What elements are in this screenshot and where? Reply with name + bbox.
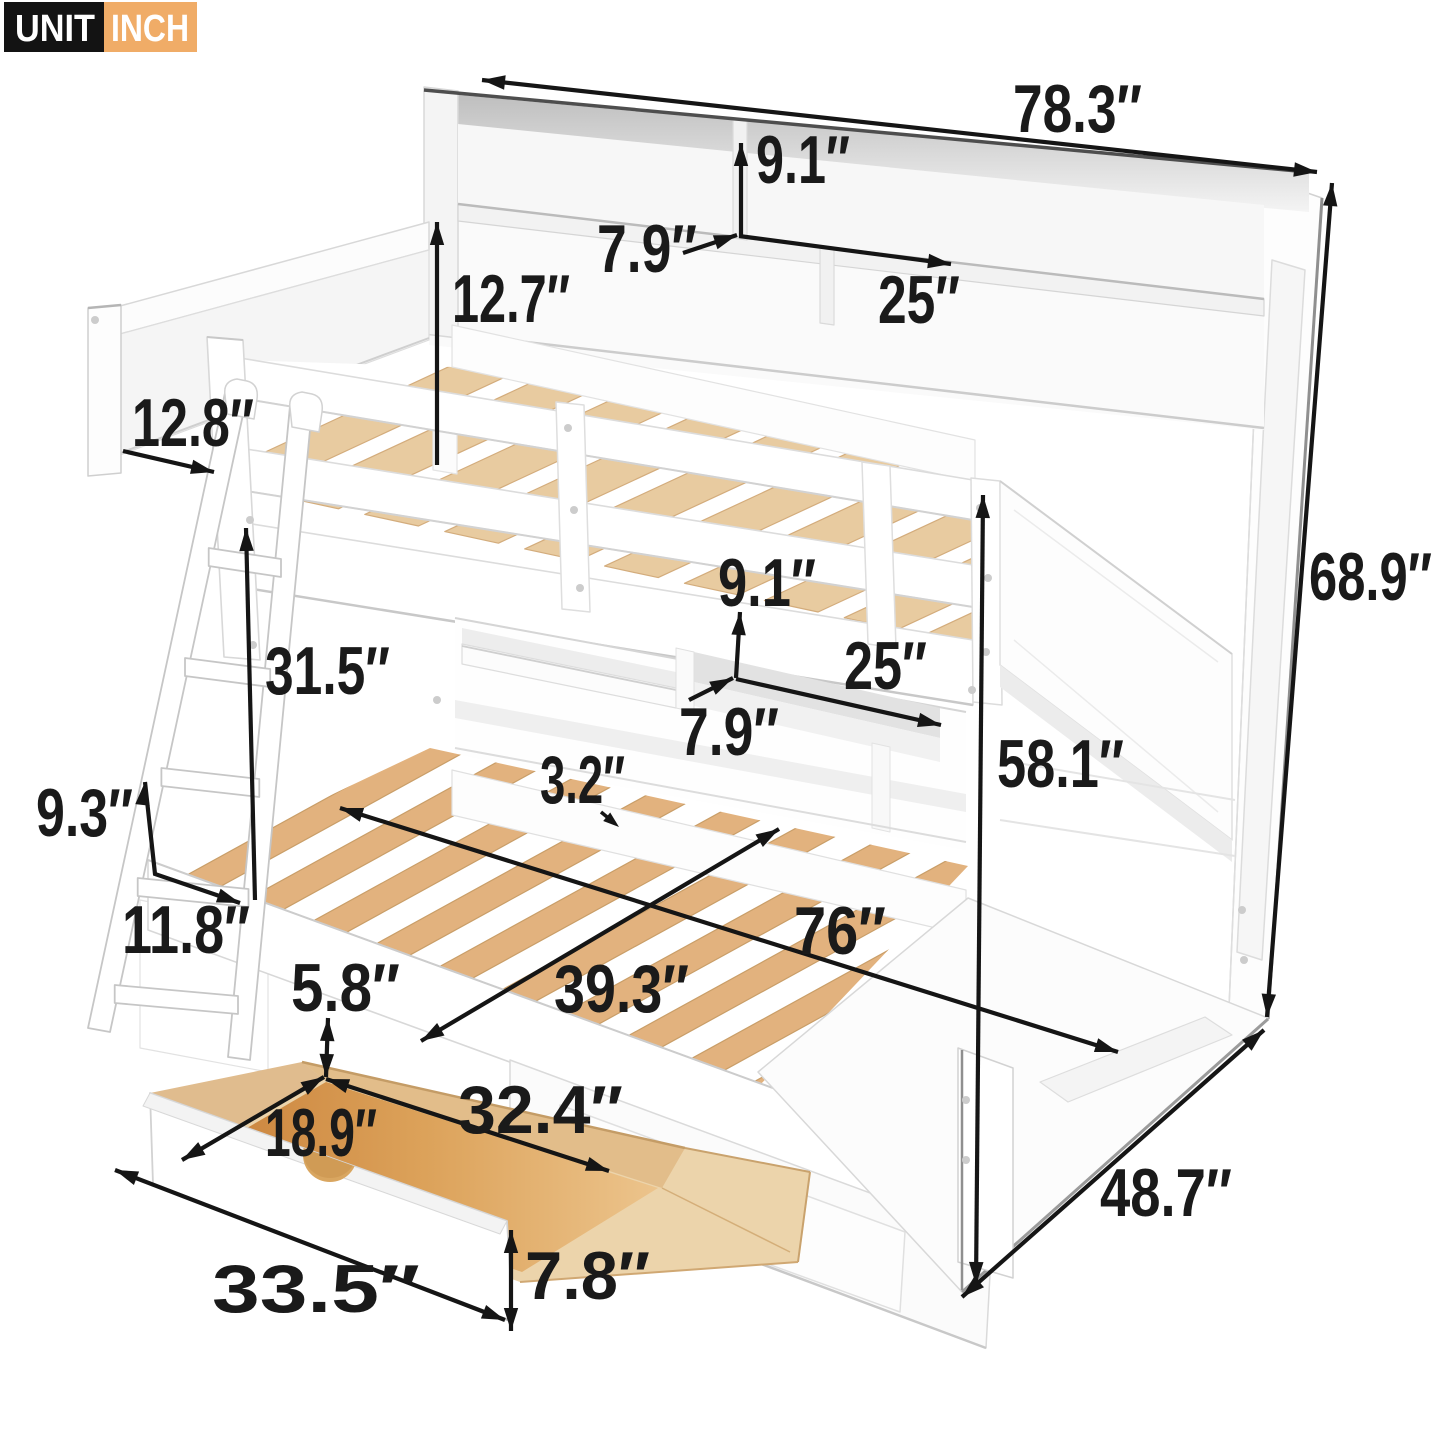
svg-text:3.2″: 3.2″ — [540, 742, 625, 818]
svg-text:25″: 25″ — [878, 262, 960, 338]
svg-text:7.9″: 7.9″ — [679, 694, 779, 770]
svg-text:9.1″: 9.1″ — [718, 545, 816, 621]
svg-text:9.1″: 9.1″ — [756, 122, 850, 198]
svg-text:9.3″: 9.3″ — [36, 775, 133, 851]
svg-text:7.8″: 7.8″ — [525, 1238, 650, 1314]
svg-text:33.5″: 33.5″ — [212, 1251, 420, 1327]
svg-text:7.9″: 7.9″ — [597, 211, 697, 287]
svg-text:78.3″: 78.3″ — [1013, 71, 1142, 147]
svg-text:58.1″: 58.1″ — [997, 726, 1124, 802]
svg-text:18.9″: 18.9″ — [265, 1095, 377, 1171]
svg-text:INCH: INCH — [111, 8, 189, 50]
svg-text:39.3″: 39.3″ — [554, 951, 689, 1027]
svg-text:UNIT: UNIT — [15, 8, 95, 50]
svg-text:32.4″: 32.4″ — [458, 1072, 623, 1148]
svg-text:76″: 76″ — [794, 893, 886, 969]
svg-text:48.7″: 48.7″ — [1100, 1155, 1232, 1231]
svg-text:25″: 25″ — [844, 628, 927, 704]
svg-text:31.5″: 31.5″ — [265, 633, 390, 709]
svg-text:11.8″: 11.8″ — [122, 892, 250, 968]
svg-text:12.7″: 12.7″ — [452, 261, 570, 337]
svg-text:5.8″: 5.8″ — [291, 950, 400, 1026]
svg-text:68.9″: 68.9″ — [1309, 539, 1432, 615]
svg-text:12.8″: 12.8″ — [132, 385, 254, 461]
